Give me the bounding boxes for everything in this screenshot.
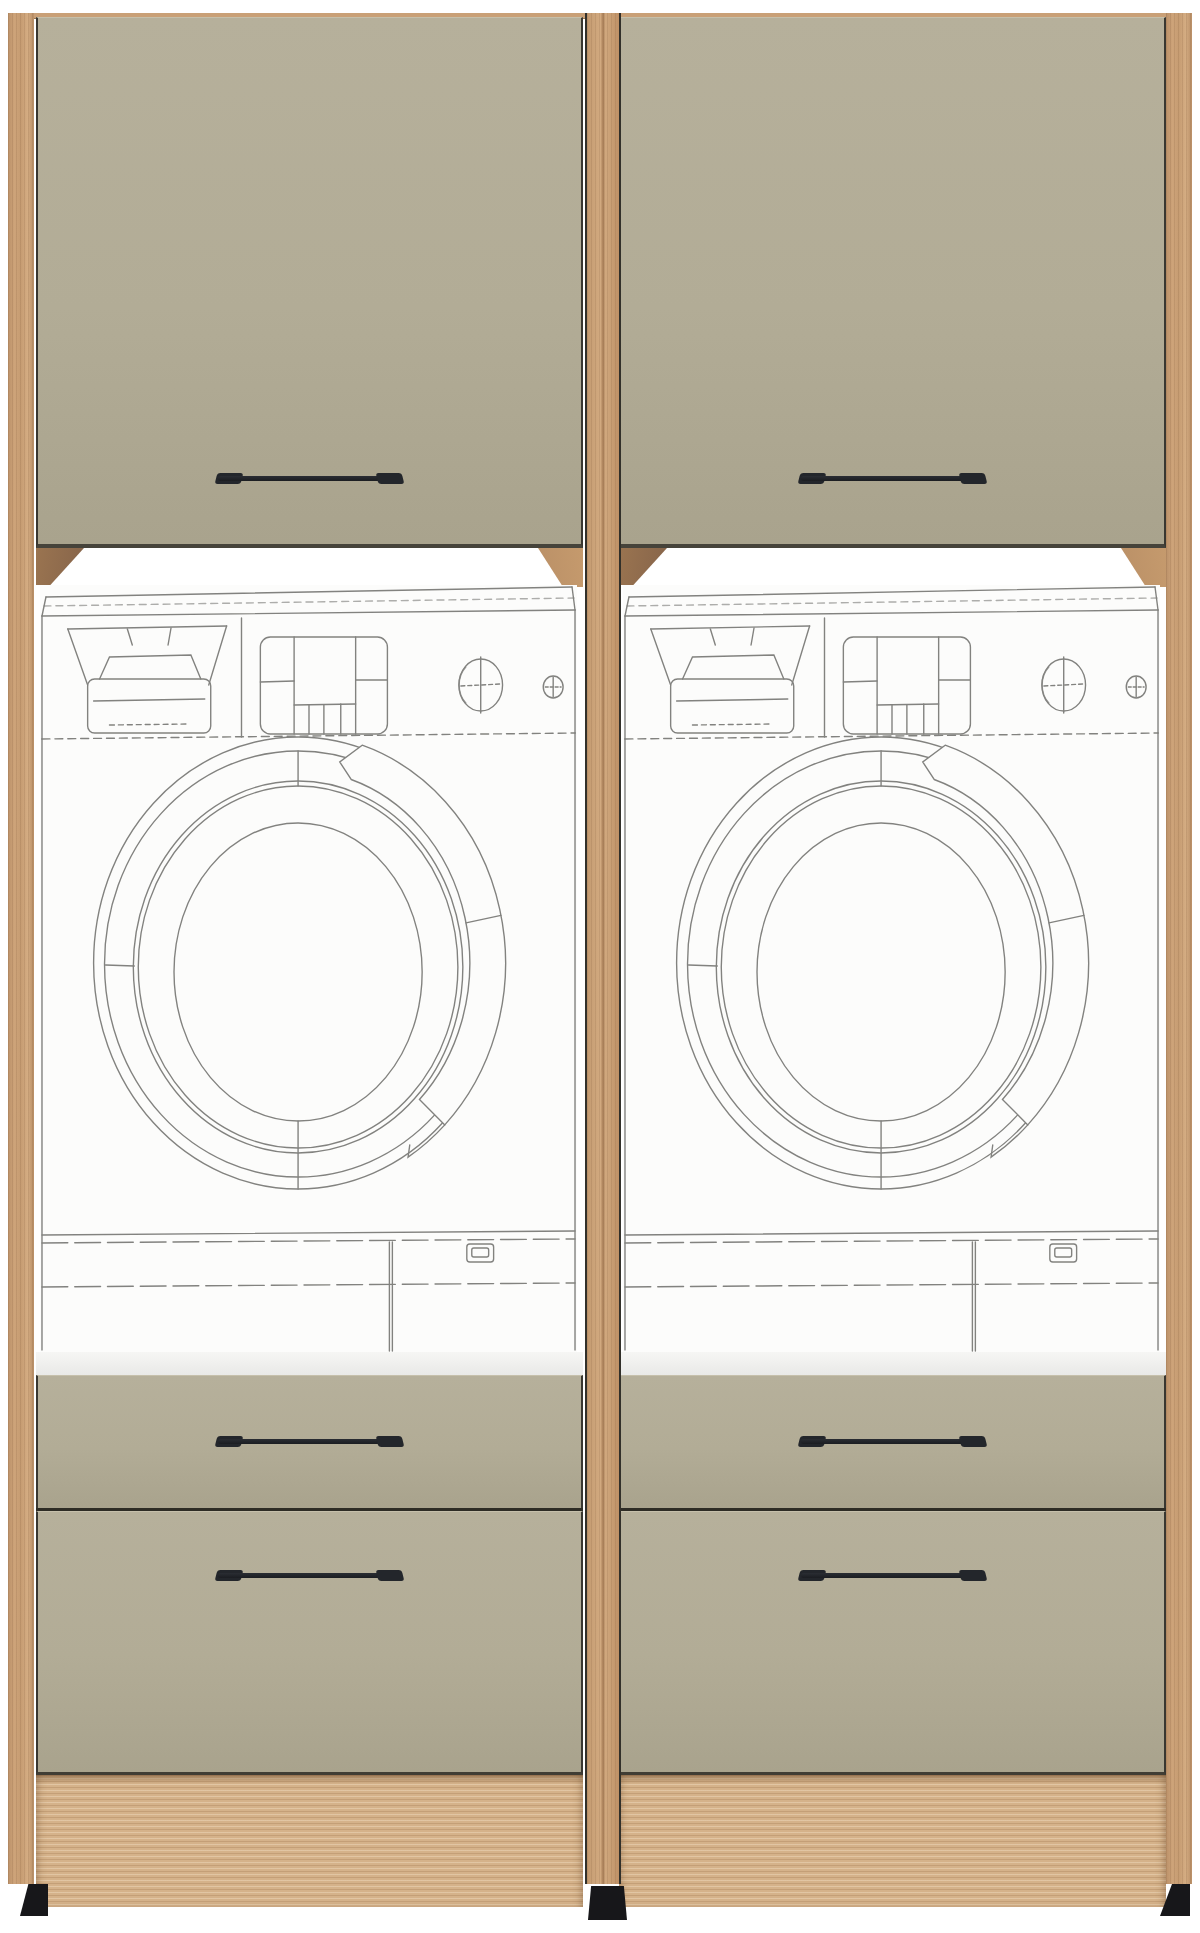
side-panel-inner-face	[1116, 548, 1166, 587]
drawer-front-large	[619, 1511, 1166, 1775]
toe-kick-panel	[36, 1775, 583, 1907]
toe-kick-panel	[619, 1775, 1166, 1907]
program-dial	[459, 657, 503, 713]
handle-bar	[801, 476, 984, 481]
handle-bar	[218, 1573, 401, 1578]
drum-opening	[174, 823, 422, 1121]
handle-bar	[801, 1439, 984, 1444]
control-panel	[42, 610, 575, 739]
base-panel	[625, 1231, 1158, 1351]
door-handle-grip	[340, 745, 506, 1157]
washing-machine-wireframe	[40, 585, 577, 1352]
display-module	[843, 637, 970, 734]
wall-cabinet-door	[619, 17, 1166, 548]
body-sides	[625, 733, 1158, 1350]
door-handle	[801, 471, 984, 487]
drawer-front-large	[36, 1511, 583, 1775]
open-niche-gap	[619, 548, 1166, 585]
base-panel	[42, 1231, 575, 1351]
tower-left	[36, 0, 583, 1933]
washing-machine-wireframe	[623, 585, 1160, 1352]
worktop	[625, 587, 1158, 616]
appliance-shelf	[619, 1352, 1166, 1376]
door-handle	[218, 471, 401, 487]
worktop	[42, 587, 575, 616]
body-sides	[42, 733, 575, 1350]
drawer-handle	[218, 1568, 401, 1584]
drawer-handle	[801, 1568, 984, 1584]
power-button	[543, 676, 563, 698]
washing-machine-slot	[623, 585, 1160, 1352]
handle-bar	[218, 1439, 401, 1444]
tower-right	[619, 0, 1166, 1933]
handle-cap	[375, 1570, 404, 1581]
open-niche-gap	[36, 548, 583, 585]
handle-bar	[218, 476, 401, 481]
drum-opening	[757, 823, 1005, 1121]
cabinet-foot	[588, 1886, 627, 1920]
handle-cap	[958, 1570, 987, 1581]
handle-cap	[375, 473, 404, 484]
side-panel-inner-shadow	[619, 548, 667, 585]
handle-cap	[958, 1436, 987, 1447]
washing-machine-slot	[40, 585, 577, 1352]
service-latch	[1050, 1244, 1077, 1262]
side-panel-inner-shadow	[36, 548, 84, 585]
handle-cap	[375, 1436, 404, 1447]
side-panel-right	[1166, 13, 1192, 1884]
center-divider-panel	[585, 13, 621, 1884]
handle-bar	[801, 1573, 984, 1578]
handle-cap	[958, 473, 987, 484]
appliance-shelf	[36, 1352, 583, 1376]
drawer-handle	[801, 1434, 984, 1450]
control-panel	[625, 610, 1158, 739]
display-module	[260, 637, 387, 734]
power-button	[1126, 676, 1146, 698]
side-panel-left	[8, 13, 34, 1884]
cabinet-foot	[20, 1884, 48, 1916]
program-dial	[1042, 657, 1086, 713]
drawer-handle	[218, 1434, 401, 1450]
service-latch	[467, 1244, 494, 1262]
detergent-drawer	[651, 626, 810, 733]
detergent-drawer	[68, 626, 227, 733]
door-handle-grip	[923, 745, 1089, 1157]
product-render	[0, 0, 1200, 1933]
side-panel-inner-face	[533, 548, 583, 587]
wall-cabinet-door	[36, 17, 583, 548]
